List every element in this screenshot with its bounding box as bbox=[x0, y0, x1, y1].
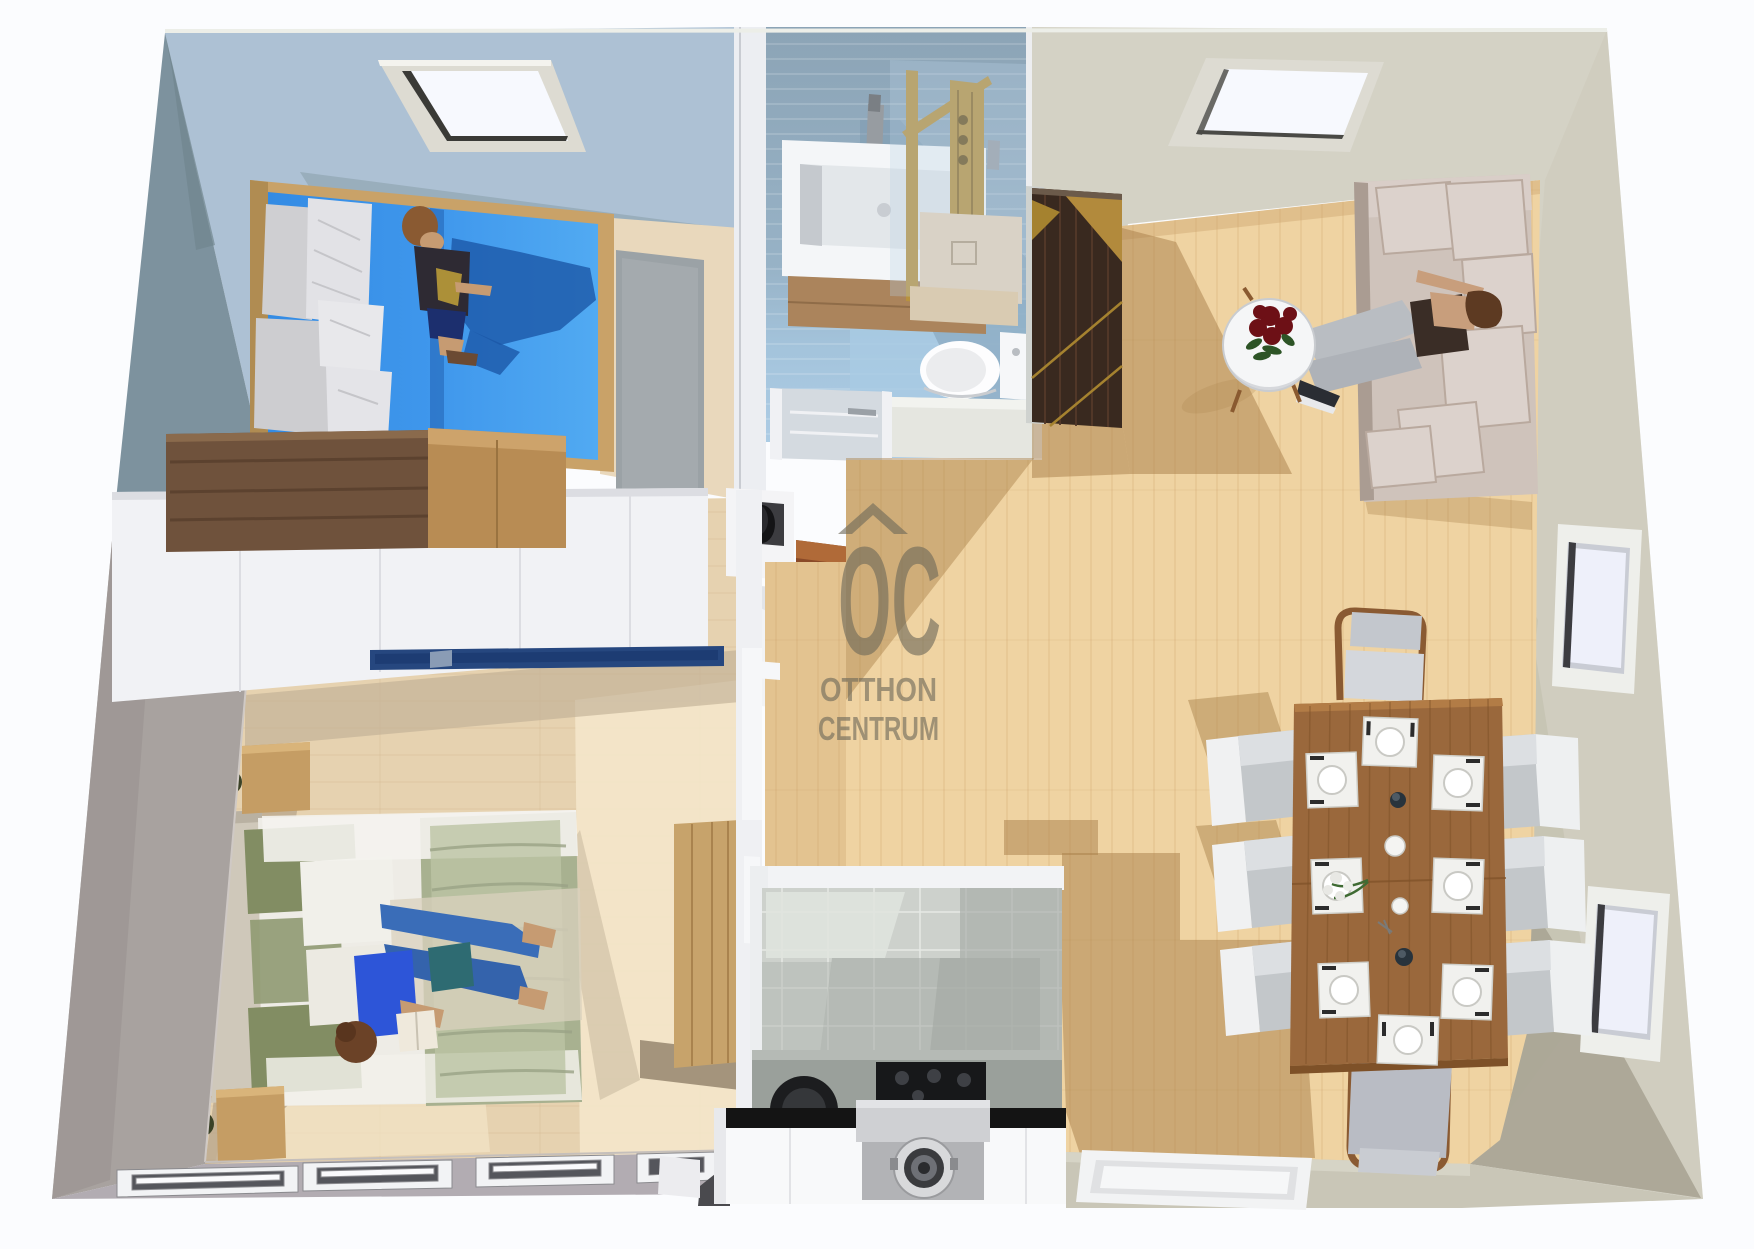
svg-text:OTTHON: OTTHON bbox=[820, 671, 937, 708]
svg-text:OC: OC bbox=[838, 515, 941, 687]
svg-text:CENTRUM: CENTRUM bbox=[818, 710, 939, 747]
